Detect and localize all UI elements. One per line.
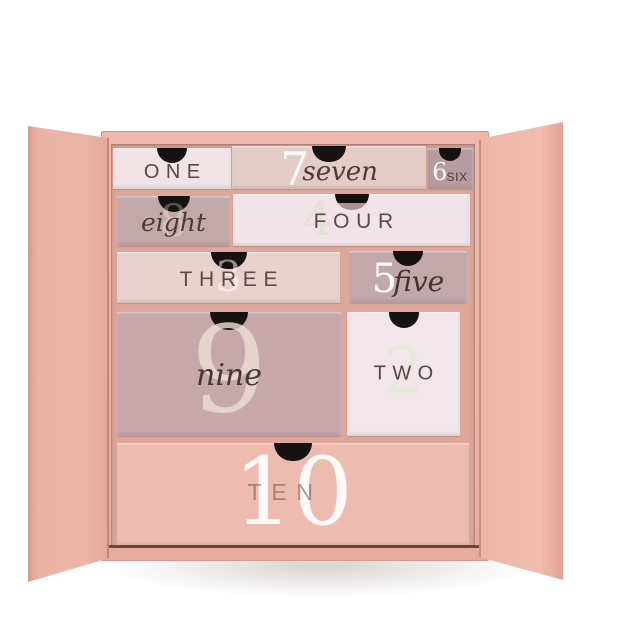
drawer-ten: 10 TEN: [117, 443, 469, 546]
drawer-label: TWO: [347, 363, 460, 386]
drawer-one: ONE: [113, 148, 231, 189]
drawer-five: 5 five: [349, 251, 467, 303]
drawer-label: FOUR: [233, 210, 470, 234]
drawer-label: nine: [117, 358, 341, 393]
drawer-seven: 7 seven: [232, 146, 426, 189]
drawer-label: TEN: [240, 479, 322, 506]
left-door-flap: [28, 122, 109, 584]
drawer-eight: 8 eight: [117, 196, 230, 246]
product-photo: ONE 7 seven 6 SIX 8 eight 4 FOUR 3 THREE…: [0, 0, 640, 640]
drawer-label: five: [393, 265, 444, 298]
drawer-six: 6 SIX: [427, 148, 473, 189]
drawer-four: 4 FOUR: [233, 194, 470, 246]
drawer-numeral: 6: [432, 160, 447, 184]
right-door-flap: [479, 122, 563, 582]
drawer-label: eight: [117, 208, 230, 237]
drawer-two: 2 TWO: [347, 312, 460, 436]
finger-notch: [335, 194, 369, 210]
box-bottom-edge: [108, 545, 480, 548]
drawer-nine: 9 nine: [117, 312, 341, 436]
drawer-label: seven: [302, 157, 378, 187]
drawer-three: 3 THREE: [117, 252, 340, 303]
drawer-label: ONE: [113, 161, 231, 184]
finger-notch: [389, 312, 419, 328]
drawer-label: THREE: [117, 268, 340, 292]
drawer-label: SIX: [446, 170, 468, 184]
